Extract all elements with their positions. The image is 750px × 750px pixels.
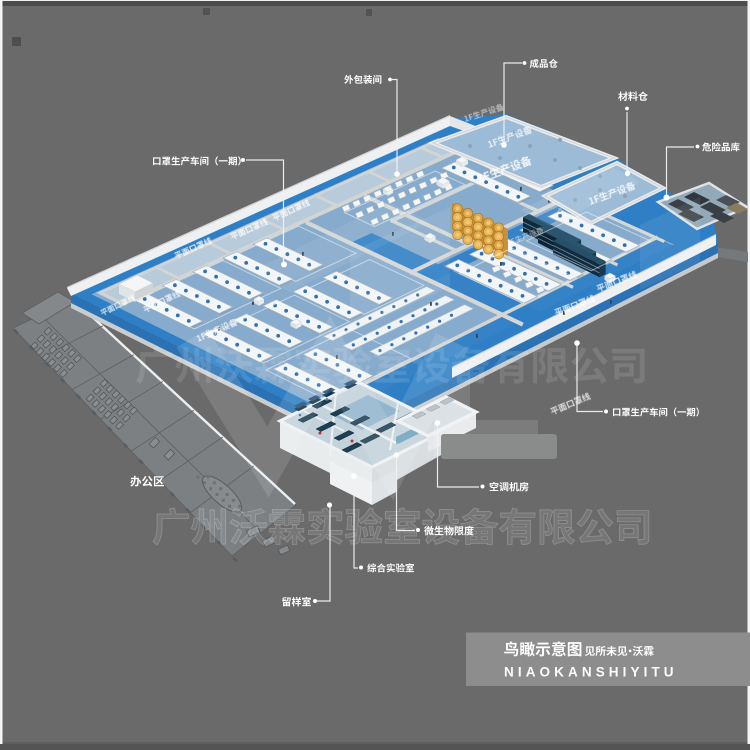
svg-text:NIAOKANSHIYITU: NIAOKANSHIYITU (504, 665, 678, 680)
